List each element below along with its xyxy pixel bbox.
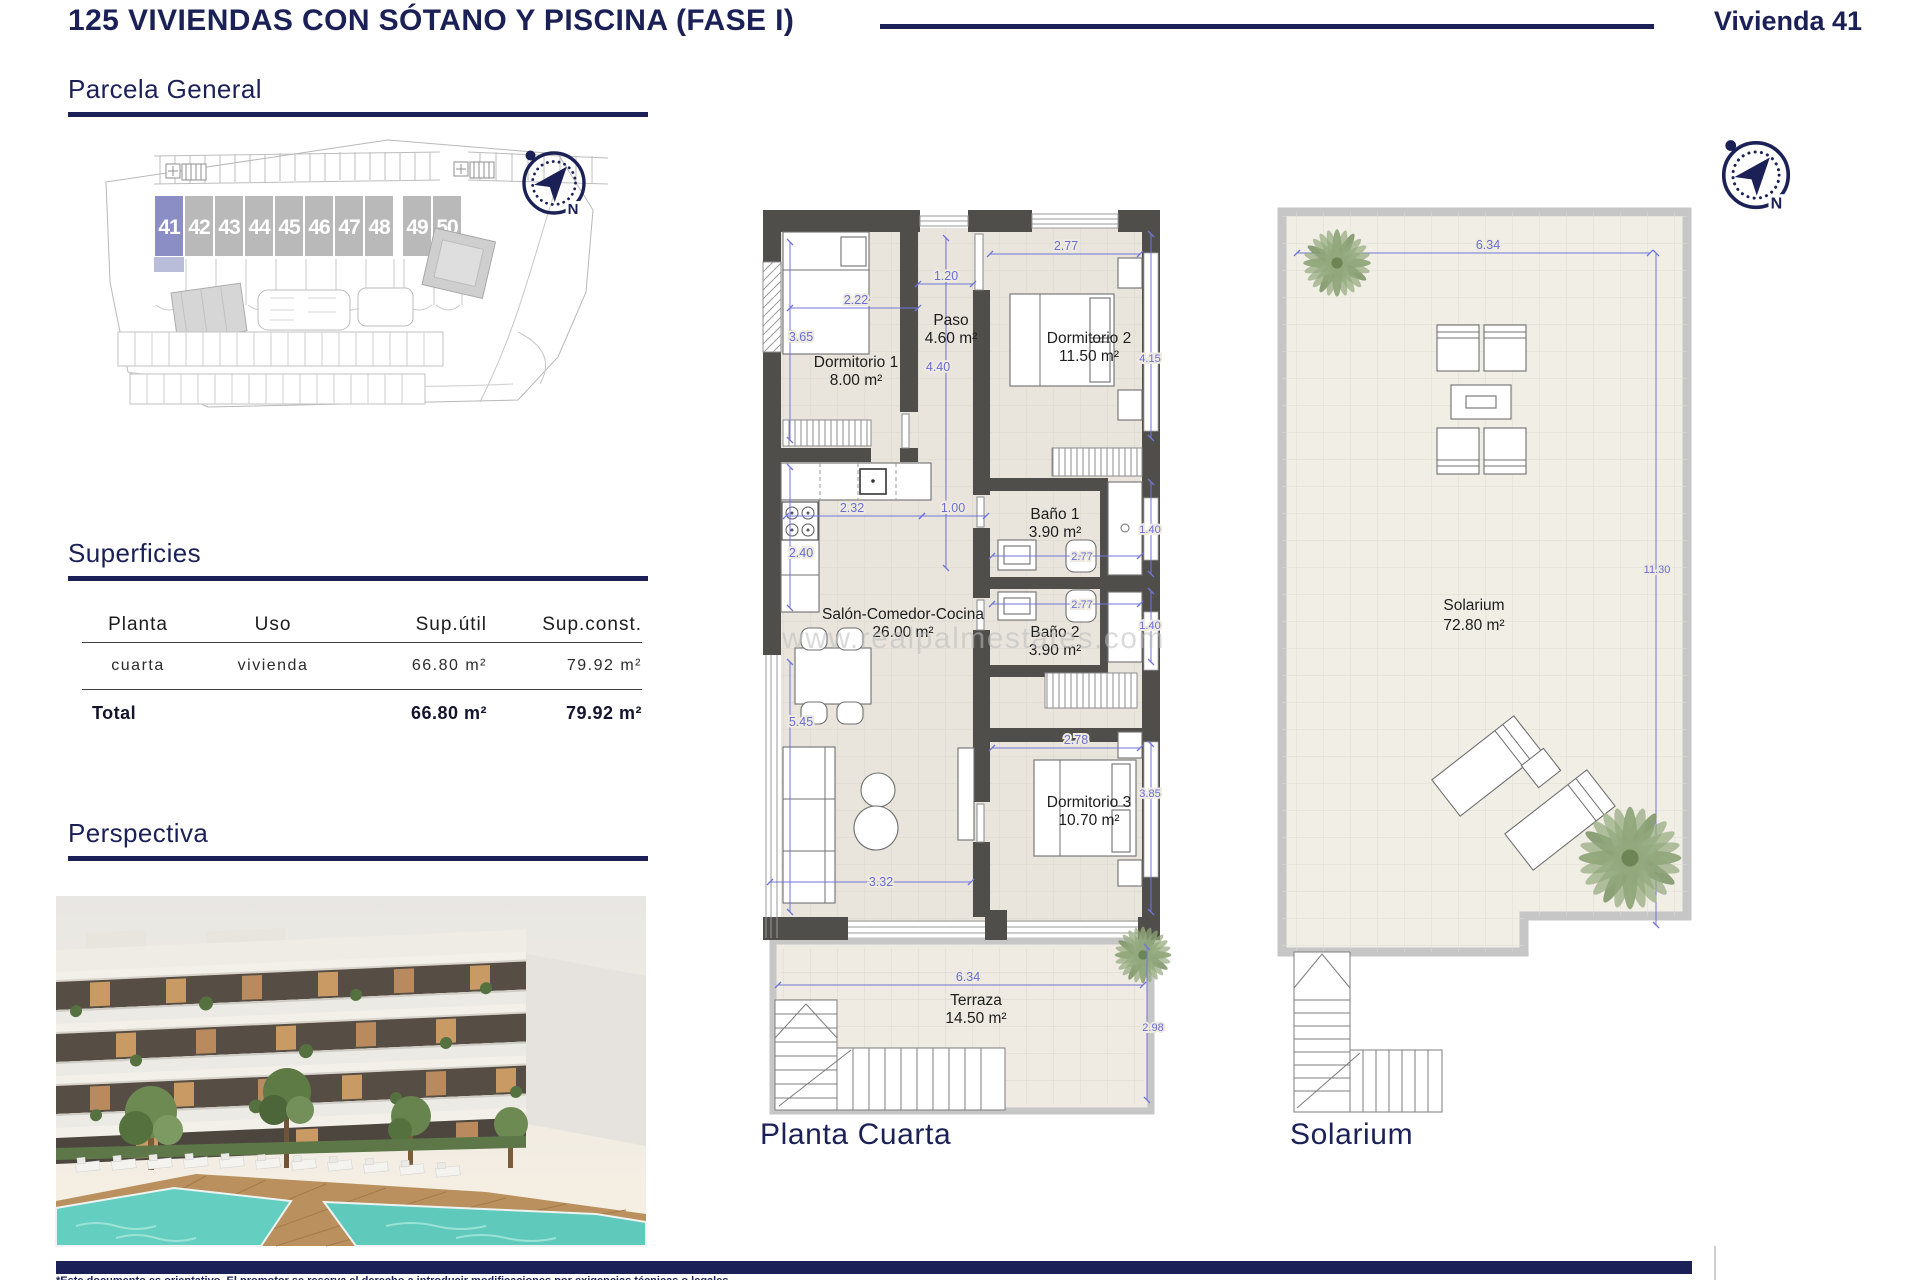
table-row: cuarta vivienda 66.80 m² 79.92 m² [68, 643, 648, 689]
room-solarium-name: Solarium [1443, 597, 1504, 614]
coffee-table [854, 806, 898, 850]
room-paso-area: 4.60 m² [925, 330, 978, 347]
unit-number: 47 [338, 216, 360, 239]
entrance-structures [166, 162, 494, 180]
section-superficies: Superficies [68, 538, 201, 569]
stove-icon [782, 502, 818, 540]
col-uso: Uso [208, 614, 338, 636]
superficies-rule [68, 576, 648, 581]
solarium-stairs [1294, 952, 1442, 1112]
wardrobe-dorm1 [783, 420, 871, 446]
unit-number: 42 [188, 216, 210, 239]
watermark: www.realpalmestates.com [782, 622, 1165, 656]
unit-number: 45 [278, 216, 301, 239]
compass-dot-nw [526, 151, 536, 161]
dim-label: 1.40 [1139, 524, 1160, 536]
dim-label: 3.85 [1139, 788, 1160, 800]
unit-number: 46 [308, 216, 330, 239]
dim-label: 2.40 [789, 546, 813, 560]
dim-label: 3.65 [789, 330, 813, 344]
tv-cabinet [958, 748, 974, 840]
dim-label: 4.40 [926, 360, 950, 374]
total-util: 66.80 m² [338, 703, 493, 724]
cell-planta: cuarta [68, 657, 208, 675]
wardrobe-dorm2 [1052, 448, 1142, 476]
room-paso-name: Paso [933, 312, 968, 329]
unit-number: 44 [248, 216, 271, 239]
dim-label: 6.34 [1476, 238, 1500, 252]
page-title: 125 VIVIENDAS CON SÓTANO Y PISCINA (FASE… [68, 4, 794, 38]
north-arrow-icon [1735, 148, 1781, 195]
compass-north-label: N [1771, 194, 1783, 212]
disclaimer-text: *Este documento es orientativo. El promo… [56, 1275, 732, 1280]
room-terraza-area: 14.50 m² [945, 1010, 1006, 1027]
dim-label: 5.45 [789, 715, 813, 729]
room-dormitorio2-name: Dormitorio 2 [1047, 330, 1131, 347]
vivienda-label: Vivienda 41 [1714, 6, 1862, 37]
total-label: Total [68, 703, 208, 724]
floorplan-planta-cuarta: 3.65 2.22 1.20 4.40 2.77 4.15 2.32 1.00 … [600, 160, 1240, 1180]
caption-planta-cuarta: Planta Cuarta [760, 1118, 951, 1152]
superficies-table: Planta Uso Sup.útil Sup.const. cuarta vi… [68, 608, 648, 736]
col-sup-util: Sup.útil [338, 614, 493, 636]
unit-number: 43 [218, 216, 240, 239]
footer-tick [1714, 1246, 1716, 1280]
dim-label: 2.98 [1142, 1022, 1163, 1034]
dim-label: 2.77 [1071, 599, 1092, 611]
col-planta: Planta [68, 614, 208, 636]
room-dormitorio2-area: 11.50 m² [1059, 348, 1119, 365]
room-terraza-name: Terraza [950, 992, 1002, 1009]
perspective-render [56, 896, 646, 1246]
room-bano1-area: 3.90 m² [1029, 524, 1082, 541]
cell-uso: vivienda [208, 657, 338, 675]
solarium-palm-small [1303, 229, 1371, 297]
north-arrow-icon [534, 158, 577, 202]
title-rule [880, 24, 1654, 29]
footer-bar [56, 1261, 1692, 1274]
room-solarium-area: 72.80 m² [1443, 617, 1504, 634]
compass-parcela: N [514, 142, 594, 222]
dim-label: 2.77 [1071, 551, 1092, 563]
unit-number: 48 [368, 216, 391, 239]
dim-label: 11.30 [1644, 564, 1671, 576]
dim-label: 2.22 [844, 293, 868, 307]
dim-label: 6.34 [956, 970, 980, 984]
compass-north-label: N [568, 201, 579, 218]
dim-label: 1.00 [941, 501, 965, 515]
sofa [783, 747, 835, 903]
parcela-rule [68, 112, 648, 117]
table-total-row: Total 66.80 m² 79.92 m² [68, 690, 648, 736]
dim-label: 1.20 [934, 269, 958, 283]
caption-solarium: Solarium [1290, 1118, 1413, 1152]
terraza-palm [1114, 926, 1171, 983]
room-dormitorio1-name: Dormitorio 1 [814, 354, 898, 371]
room-dormitorio3-area: 10.70 m² [1058, 812, 1119, 829]
cell-util: 66.80 m² [338, 657, 493, 675]
dim-label: 4.15 [1139, 353, 1160, 365]
unit-number: 49 [406, 216, 428, 239]
unit-number: 41 [158, 216, 181, 239]
floorplan-solarium: 6.34 11.30 [1270, 150, 1730, 1180]
room-bano1-name: Baño 1 [1030, 506, 1079, 523]
dim-label: 2.32 [840, 501, 864, 515]
dim-label: 3.32 [869, 875, 893, 889]
brochure-page: 125 VIVIENDAS CON SÓTANO Y PISCINA (FASE… [0, 0, 1920, 1280]
dim-label: 2.78 [1064, 733, 1088, 747]
side-table [861, 773, 895, 807]
room-salon-name: Salón-Comedor-Cocina [822, 606, 984, 623]
perspectiva-rule [68, 856, 648, 861]
unit-41-terrace [154, 257, 184, 272]
room-dormitorio3-name: Dormitorio 3 [1047, 794, 1131, 811]
section-parcela-general: Parcela General [68, 74, 262, 105]
dim-label: 2.77 [1054, 239, 1078, 253]
solarium-palm-large [1578, 806, 1682, 910]
section-perspectiva: Perspectiva [68, 818, 208, 849]
wardrobe-hall [1045, 673, 1137, 708]
room-dormitorio1-area: 8.00 m² [830, 372, 883, 389]
